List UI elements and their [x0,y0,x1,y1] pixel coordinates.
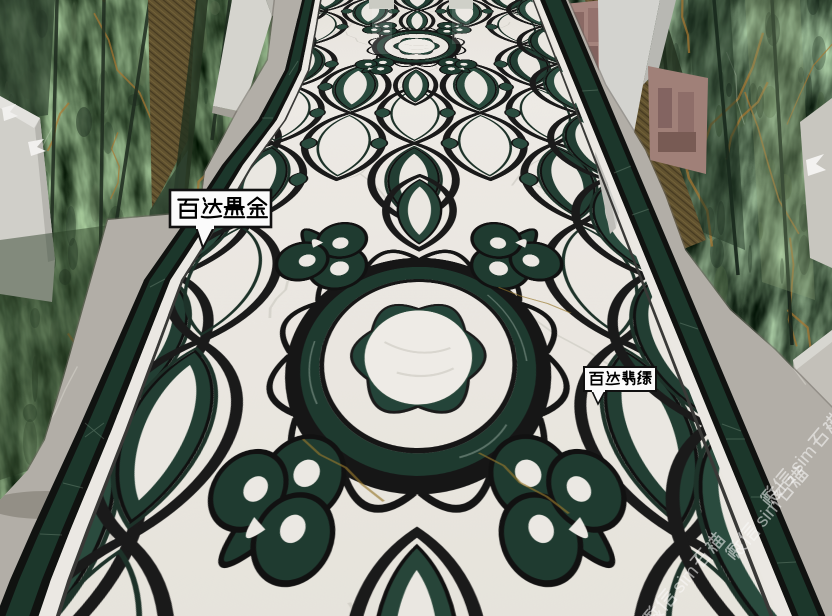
svg-text:sim: sim [668,561,703,597]
